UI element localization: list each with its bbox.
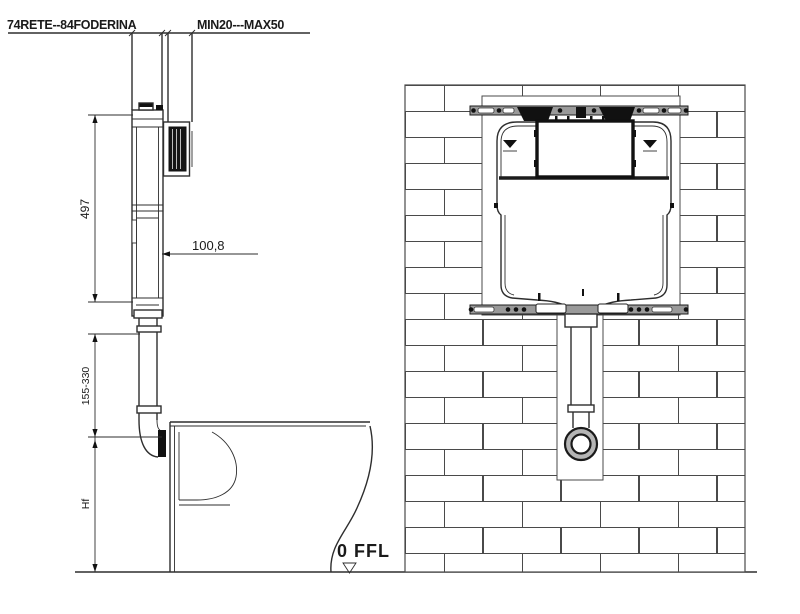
dim-pan-height: Hf xyxy=(80,499,92,510)
outlet-elbow xyxy=(565,428,597,460)
dimension-pan-height: Hf xyxy=(80,437,98,572)
dim-plate-offset: MIN20---MAX50 xyxy=(197,18,284,32)
cistern-tank-side xyxy=(132,103,163,316)
dim-pipe-range: 155-330 xyxy=(80,367,92,406)
mounting-rail-bottom xyxy=(469,304,689,314)
ffl-marker: 0 FFL xyxy=(337,541,390,573)
dimension-tank-depth: 100,8 xyxy=(162,238,258,257)
ffl-label: 0 FFL xyxy=(337,541,390,561)
dimension-pipe-range: 155-330 xyxy=(80,334,162,437)
dim-tank-height: 497 xyxy=(78,199,92,219)
dim-tank-depth: 100,8 xyxy=(192,238,225,253)
dim-embed-depth: 74RETE--84FODERINA xyxy=(7,18,137,32)
flush-pipe-side xyxy=(134,310,166,457)
drawing-canvas: 74RETE--84FODERINA MIN20---MAX50 xyxy=(0,0,800,614)
funnel-left xyxy=(536,304,566,313)
flush-plate-side xyxy=(164,122,193,176)
cistern-installation-drawing: 74RETE--84FODERINA MIN20---MAX50 xyxy=(0,0,800,614)
inlet-fitting xyxy=(576,107,586,118)
dimension-tank-height: 497 xyxy=(78,115,133,302)
front-view xyxy=(405,85,745,572)
pipe-flange xyxy=(158,430,166,457)
funnel-right xyxy=(598,304,628,313)
access-panel xyxy=(537,121,633,177)
